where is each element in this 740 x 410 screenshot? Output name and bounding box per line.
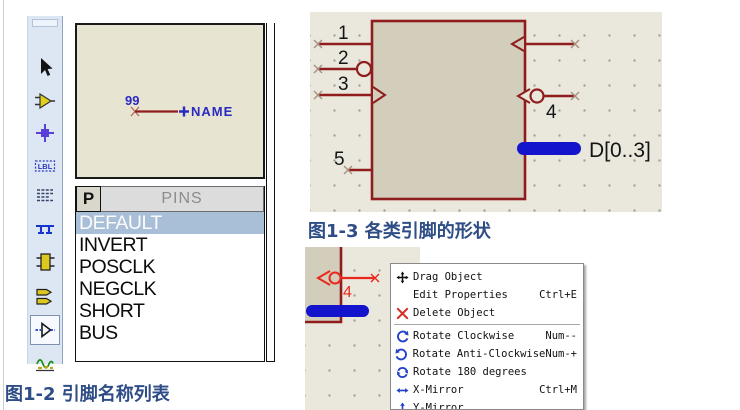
pin-2-label: 2 — [338, 48, 349, 69]
subcircuit-icon — [33, 250, 57, 274]
list-item-short[interactable]: SHORT — [76, 300, 264, 322]
bus-pin — [517, 142, 581, 155]
context-menu: Drag Object Edit Properties Ctrl+E Delet… — [390, 263, 584, 410]
pin-preview-panel: 99 NAME — [75, 23, 265, 179]
menu-item-shortcut: Ctrl+M — [539, 384, 577, 396]
figure-caption-1-2: 图1-2 引脚名称列表 — [5, 380, 170, 406]
component-tool-button[interactable] — [30, 86, 60, 116]
bus-icon — [33, 216, 57, 240]
component-icon — [33, 89, 57, 113]
schematic-canvas[interactable]: 1 2 3 5 4 D[0..3 — [310, 12, 662, 212]
rotate-180-icon — [391, 366, 413, 379]
menu-item-edit-properties[interactable]: Edit Properties Ctrl+E — [391, 286, 583, 304]
svg-text:LBL: LBL — [38, 162, 53, 171]
graph-tool-button[interactable] — [30, 348, 60, 378]
tool-palette: LBL — [27, 16, 63, 364]
menu-item-label: Y-Mirror — [413, 402, 577, 410]
menu-item-rotate-180[interactable]: Rotate 180 degrees — [391, 363, 583, 381]
menu-item-rotate-clockwise[interactable]: Rotate Clockwise Num-- — [391, 327, 583, 345]
pin-5-label: 5 — [334, 149, 345, 170]
pick-pins-button[interactable]: P — [76, 186, 101, 212]
list-item-bus[interactable]: BUS — [76, 322, 264, 344]
pin-3-label: 3 — [338, 74, 349, 95]
subcircuit-tool-button[interactable] — [30, 247, 60, 277]
preview-pin-number: 99 — [125, 93, 139, 108]
menu-item-shortcut: Num-- — [545, 330, 577, 342]
menu-item-x-mirror[interactable]: X-Mirror Ctrl+M — [391, 381, 583, 399]
selection-tool-button[interactable] — [30, 52, 60, 82]
pin-4-label: 4 — [546, 102, 557, 123]
graph-icon — [33, 351, 57, 375]
menu-item-label: Delete Object — [413, 307, 577, 319]
menu-item-delete-object[interactable]: Delete Object — [391, 304, 583, 322]
mini-bus-pin — [306, 305, 369, 317]
junction-dot-icon — [33, 121, 57, 145]
menu-separator — [394, 324, 580, 325]
wire-label-tool-button[interactable]: LBL — [30, 151, 60, 181]
component-body — [372, 21, 525, 199]
device-pin-icon — [33, 318, 57, 342]
list-item-default[interactable]: DEFAULT — [76, 212, 264, 234]
menu-item-shortcut: Num-+ — [545, 348, 577, 360]
page-left-rule — [3, 0, 4, 410]
toolbar-grip[interactable] — [32, 19, 58, 27]
terminals-tool-button[interactable] — [30, 282, 60, 312]
list-item-negclk[interactable]: NEGCLK — [76, 278, 264, 300]
pins-header-label: PINS — [101, 186, 264, 212]
delete-icon — [391, 307, 413, 320]
wire-label-icon: LBL — [33, 154, 57, 178]
menu-item-shortcut: Ctrl+E — [539, 289, 577, 301]
list-item-posclk[interactable]: POSCLK — [76, 256, 264, 278]
menu-item-rotate-anticlockwise[interactable]: Rotate Anti-Clockwise Num-+ — [391, 345, 583, 363]
menu-item-label: Edit Properties — [413, 289, 539, 301]
menu-item-drag-object[interactable]: Drag Object — [391, 268, 583, 286]
text-script-tool-button[interactable] — [30, 181, 60, 211]
object-selector-panel: P PINS DEFAULT INVERT POSCLK NEGCLK SHOR… — [75, 186, 265, 362]
move-icon — [391, 271, 413, 284]
cursor-arrow-icon — [33, 55, 57, 79]
schematic-graphic: 1 2 3 5 4 D[0..3 — [310, 12, 662, 212]
rotate-clockwise-icon — [391, 330, 413, 343]
menu-item-y-mirror[interactable]: Y-Mirror — [391, 399, 583, 410]
menu-item-label: Rotate Anti-Clockwise — [413, 348, 546, 360]
x-mirror-icon — [391, 384, 413, 397]
object-selector-scrollbar[interactable] — [266, 23, 275, 362]
pin-1-label: 1 — [338, 23, 349, 44]
page: LBL — [0, 0, 740, 410]
menu-item-label: Rotate 180 degrees — [413, 366, 577, 378]
buses-tool-button[interactable] — [30, 213, 60, 243]
terminal-icon — [33, 285, 57, 309]
preview-pin-name: NAME — [191, 104, 233, 119]
device-pins-tool-button[interactable] — [30, 315, 60, 345]
origin-cross-icon — [179, 107, 189, 117]
pin-type-list: DEFAULT INVERT POSCLK NEGCLK SHORT BUS — [76, 212, 264, 344]
figure-caption-1-3: 图1-3 各类引脚的形状 — [308, 217, 491, 243]
rotate-anticlockwise-icon — [391, 348, 413, 361]
menu-item-label: Drag Object — [413, 271, 577, 283]
text-script-icon — [33, 184, 57, 208]
object-selector-header: P PINS — [76, 186, 264, 212]
invert-bubble — [357, 62, 371, 76]
pin-preview-graphic: 99 NAME — [77, 25, 263, 177]
menu-item-label: X-Mirror — [413, 384, 539, 396]
pin-4-bubble — [531, 90, 544, 103]
junction-dot-tool-button[interactable] — [30, 118, 60, 148]
list-item-invert[interactable]: INVERT — [76, 234, 264, 256]
bus-label: D[0..3] — [589, 139, 651, 162]
y-mirror-icon — [391, 402, 413, 410]
selected-pin-label: 4 — [343, 284, 352, 301]
menu-item-label: Rotate Clockwise — [413, 330, 545, 342]
